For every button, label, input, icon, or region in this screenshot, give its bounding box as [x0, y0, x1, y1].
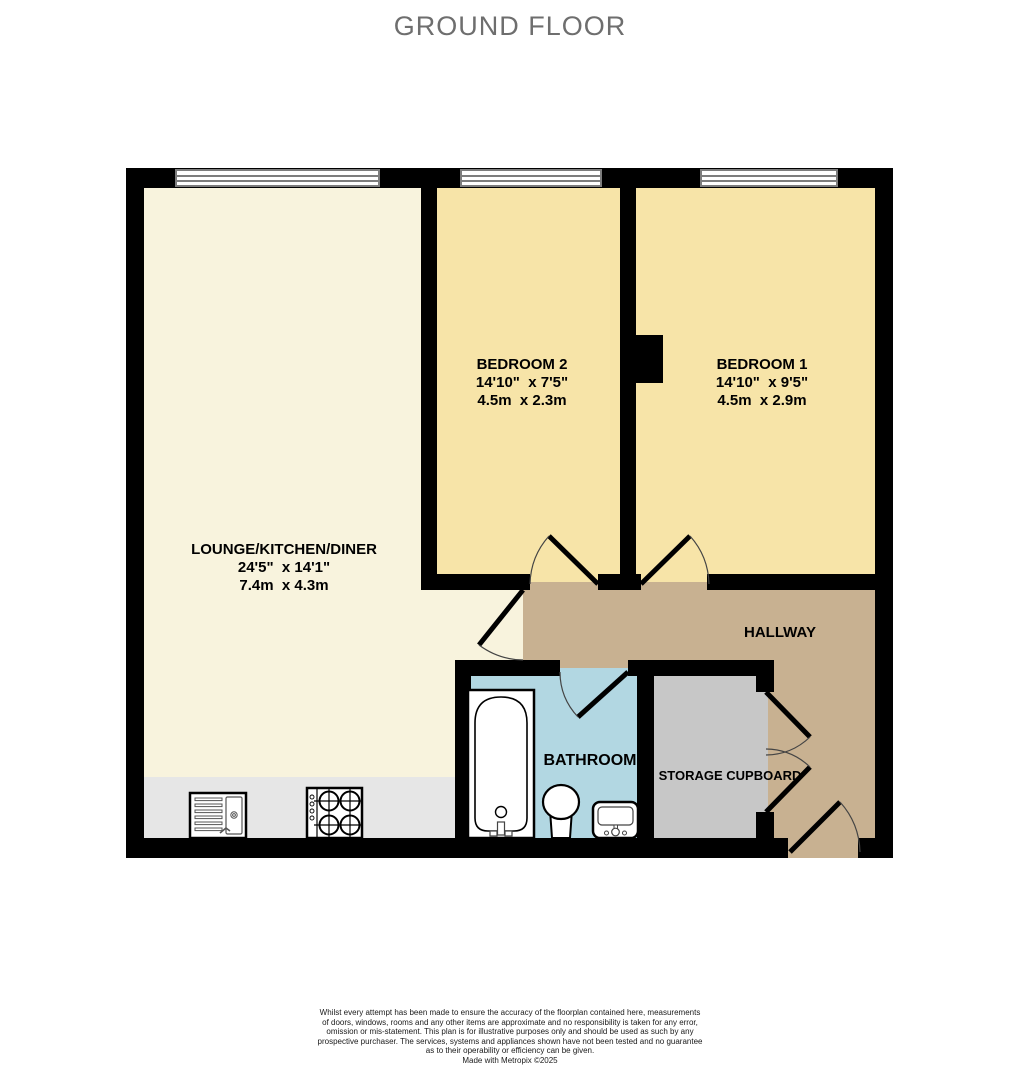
window-pane-line — [462, 175, 600, 177]
lounge-name: LOUNGE/KITCHEN/DINER — [134, 541, 434, 559]
lounge-dims-imperial: 24'5" x 14'1" — [134, 559, 434, 577]
floorplan-canvas: GROUND FLOOR — [0, 0, 1020, 1066]
storage-door-jamb-bottom — [756, 812, 774, 858]
disclaimer-line: omission or mis-statement. This plan is … — [0, 1027, 1020, 1037]
wall-bedrooms-bottom-c — [707, 574, 875, 590]
page-title: GROUND FLOOR — [0, 11, 1020, 42]
wall-outer-bottom-right — [858, 838, 893, 858]
storage-door-jamb-top — [756, 660, 774, 692]
window-pane-line — [177, 175, 378, 177]
window-pane-line — [177, 180, 378, 182]
bedroom2-dims-metric: 4.5m x 2.3m — [410, 392, 634, 410]
lounge-dims-metric: 7.4m x 4.3m — [134, 577, 434, 595]
window-lounge — [175, 169, 380, 187]
bedroom2-name: BEDROOM 2 — [410, 356, 634, 374]
wall-bedrooms-bottom-b — [598, 574, 641, 590]
window-pane-line — [702, 175, 836, 177]
storage-name: STORAGE CUPBOARD — [628, 768, 832, 784]
disclaimer-line: Whilst every attempt has been made to en… — [0, 1008, 1020, 1018]
bedroom2-dims-imperial: 14'10" x 7'5" — [410, 374, 634, 392]
window-bedroom2 — [460, 169, 602, 187]
wall-bedrooms-bottom-a — [421, 574, 530, 590]
wall-outer-right — [875, 168, 893, 858]
disclaimer-line: prospective purchaser. The services, sys… — [0, 1037, 1020, 1047]
bedroom1-dims-metric: 4.5m x 2.9m — [650, 392, 874, 410]
disclaimer: Whilst every attempt has been made to en… — [0, 1008, 1020, 1066]
disclaimer-line: of doors, windows, rooms and any other i… — [0, 1018, 1020, 1028]
credit-line: Made with Metropix ©2025 — [0, 1056, 1020, 1066]
window-pane-line — [702, 180, 836, 182]
bedroom1-name: BEDROOM 1 — [650, 356, 874, 374]
wall-outer-left — [126, 168, 144, 858]
bedroom1-label: BEDROOM 1 14'10" x 9'5" 4.5m x 2.9m — [650, 356, 874, 410]
hallway-floor-column — [762, 660, 878, 858]
window-bedroom1 — [700, 169, 838, 187]
hallway-name: HALLWAY — [700, 624, 860, 642]
lounge-label: LOUNGE/KITCHEN/DINER 24'5" x 14'1" 7.4m … — [134, 541, 434, 595]
window-pane-line — [462, 180, 600, 182]
storage-label: STORAGE CUPBOARD — [628, 768, 832, 784]
kitchen-counter — [144, 777, 455, 838]
wall-bathroom-left — [455, 660, 471, 858]
bedroom1-dims-imperial: 14'10" x 9'5" — [650, 374, 874, 392]
disclaimer-line: as to their operability or efficiency ca… — [0, 1046, 1020, 1056]
hallway-label: HALLWAY — [700, 624, 860, 642]
bedroom2-label: BEDROOM 2 14'10" x 7'5" 4.5m x 2.3m — [410, 356, 634, 410]
